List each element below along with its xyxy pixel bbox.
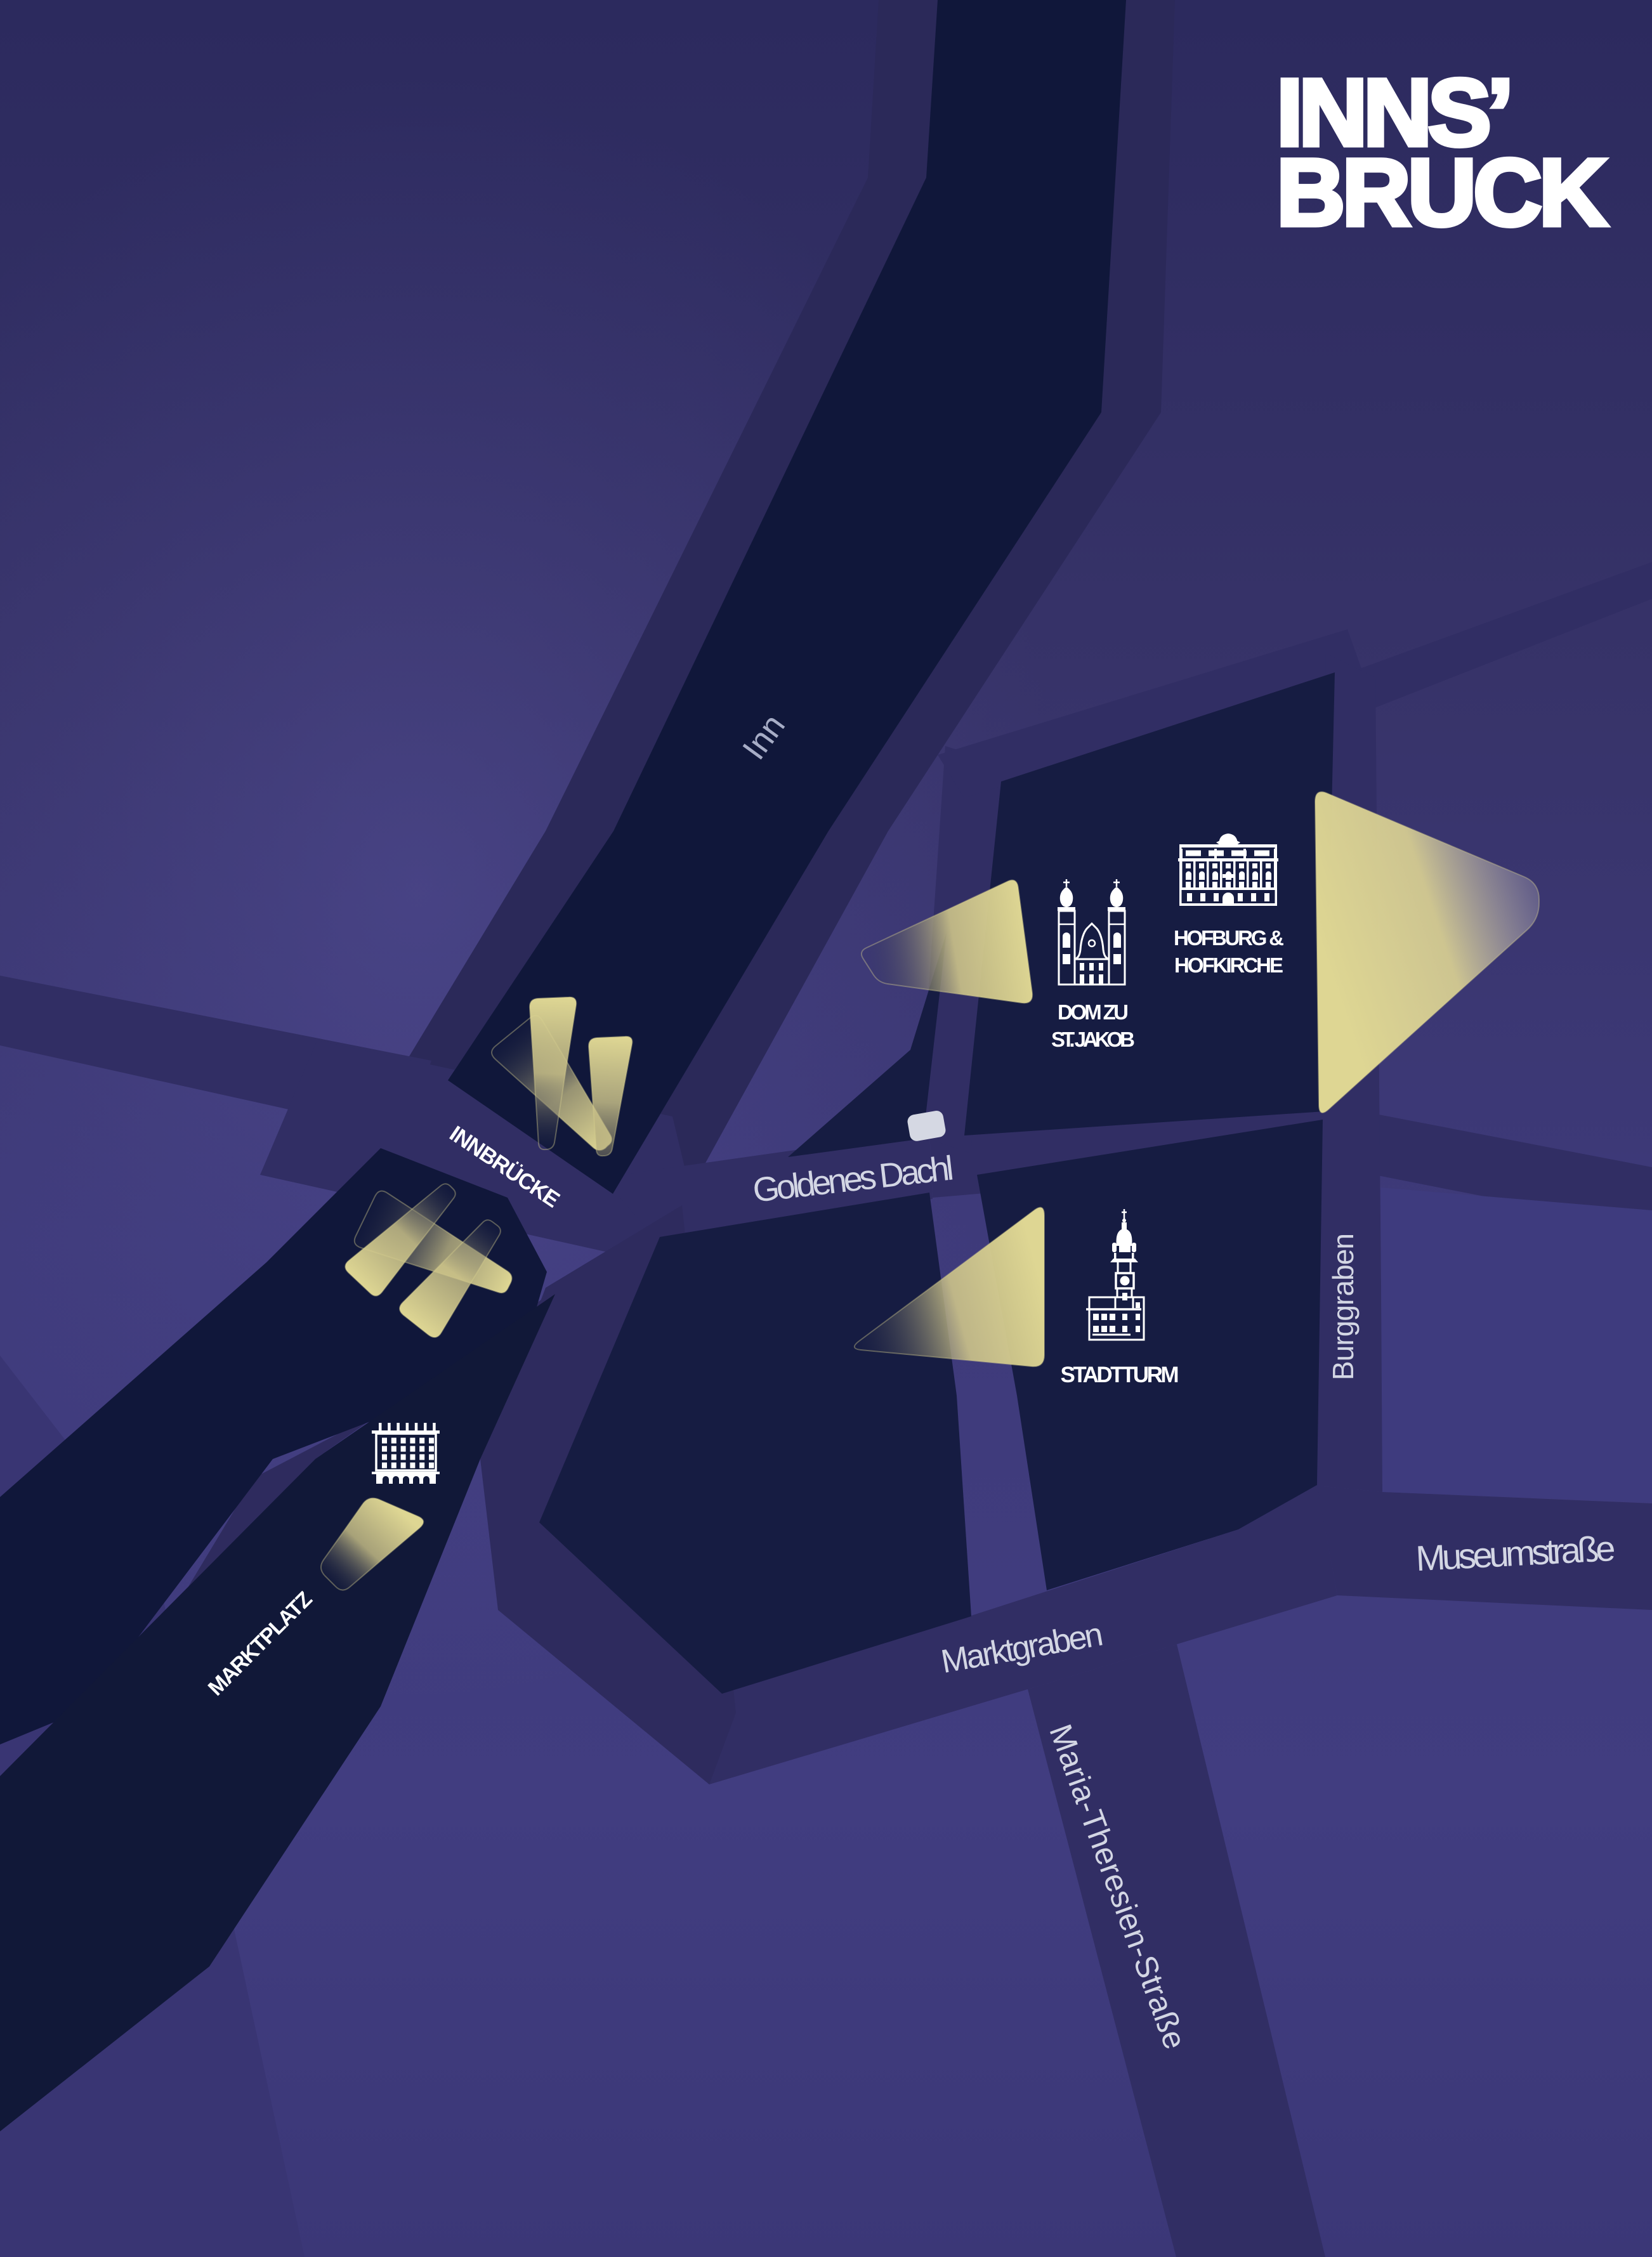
svg-text:HOFKIRCHE: HOFKIRCHE <box>1174 953 1283 977</box>
svg-text:STADTTURM: STADTTURM <box>1061 1363 1179 1387</box>
svg-text:BRUCK: BRUCK <box>1276 139 1608 245</box>
svg-text:HOFBURG &: HOFBURG & <box>1174 926 1284 950</box>
svg-text:ST. JAKOB: ST. JAKOB <box>1051 1028 1135 1051</box>
svg-text:Burggraben: Burggraben <box>1327 1233 1360 1380</box>
svg-text:DOM ZU: DOM ZU <box>1058 1000 1129 1024</box>
